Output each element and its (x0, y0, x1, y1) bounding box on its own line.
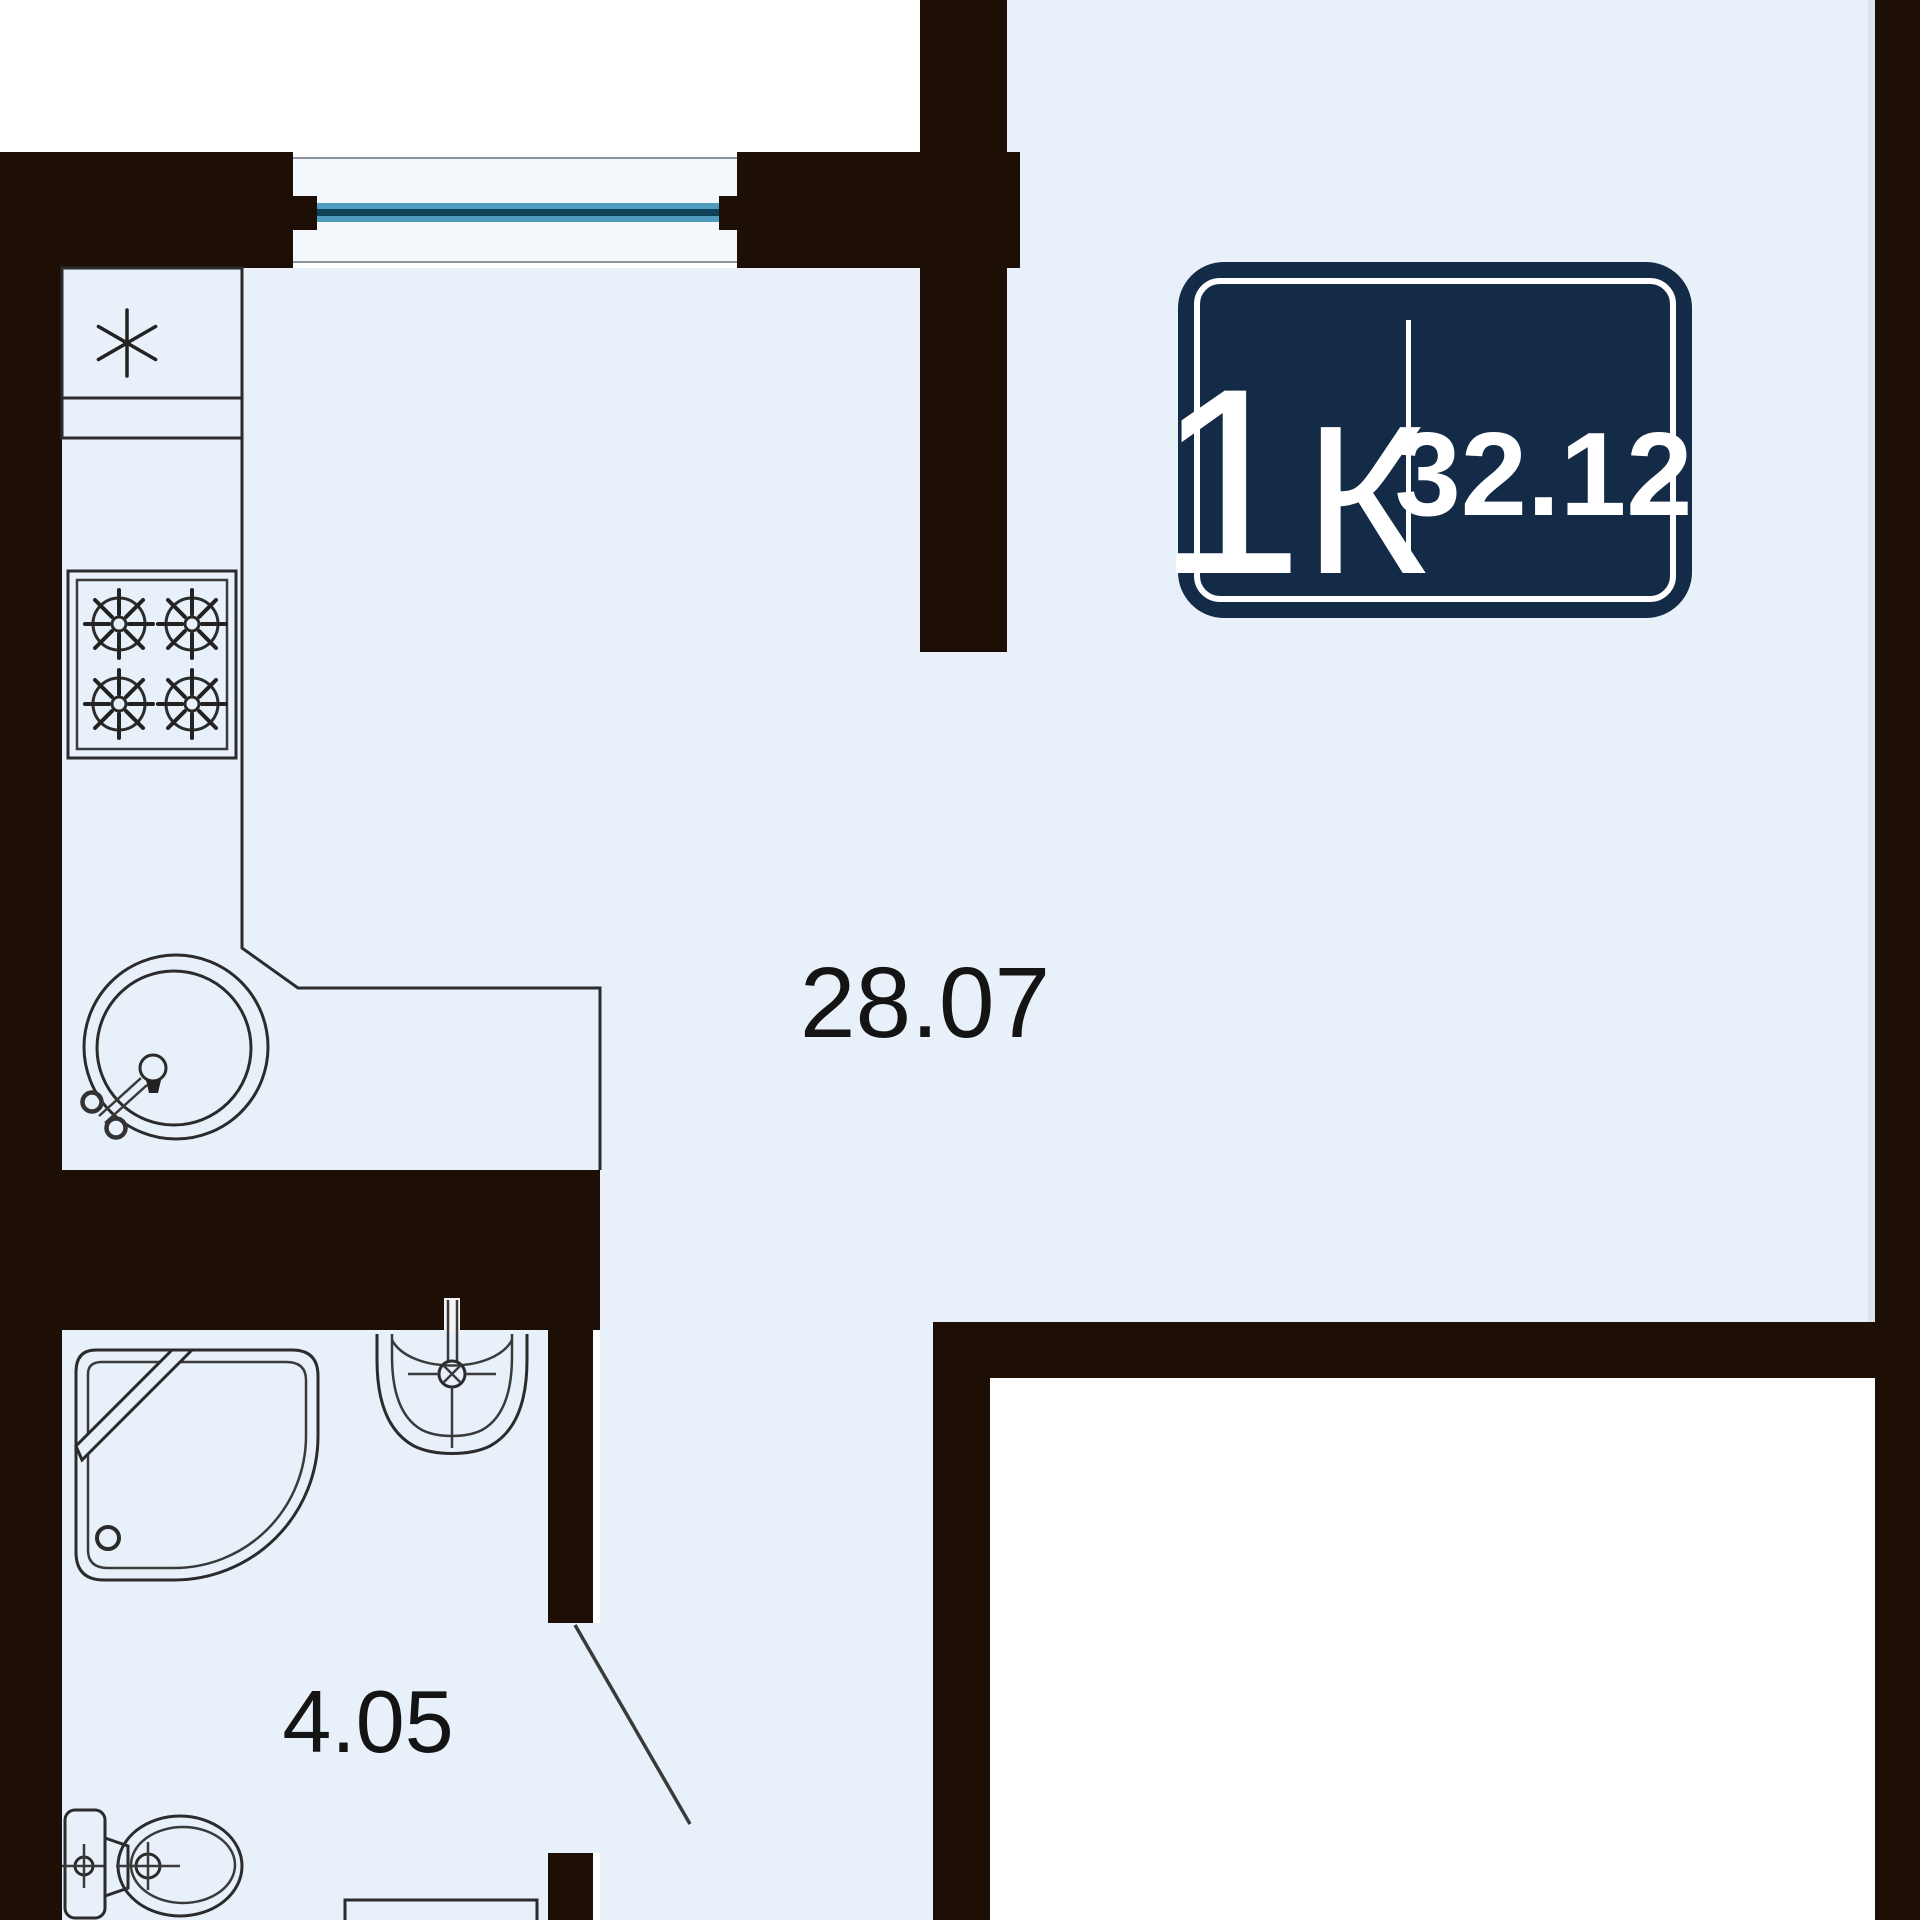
stove-burner-icon (85, 590, 153, 658)
cabinet-outline (345, 1900, 537, 1920)
stove-burner-icon (158, 590, 226, 658)
living-room-area-label: 28.07 (780, 953, 1070, 1053)
door-leaf-icon (575, 1625, 690, 1824)
fridge-asterisk-icon (98, 310, 155, 376)
apartment-badge: 1К 32.12 (1178, 262, 1692, 618)
badge-rooms-count: 1 (1156, 350, 1303, 615)
kitchen-sink-icon (83, 955, 269, 1139)
badge-rooms-label: 1К (1178, 350, 1405, 615)
stove-burner-icon (85, 670, 153, 738)
badge-area-text: 32.12 (1395, 415, 1693, 534)
stove-burner-icon (158, 670, 226, 738)
stove-icon (68, 571, 236, 758)
toilet-icon (62, 1810, 242, 1918)
shower-cabin-icon (76, 1350, 318, 1580)
bathroom-area-label: 4.05 (268, 1678, 468, 1766)
bathroom-sink-icon (377, 1298, 527, 1454)
badge-area-value: 32.12 (1405, 415, 1682, 534)
kitchen-counter (62, 268, 600, 1170)
floor-plan: 28.07 4.05 1К 32.12 (0, 0, 1920, 1920)
